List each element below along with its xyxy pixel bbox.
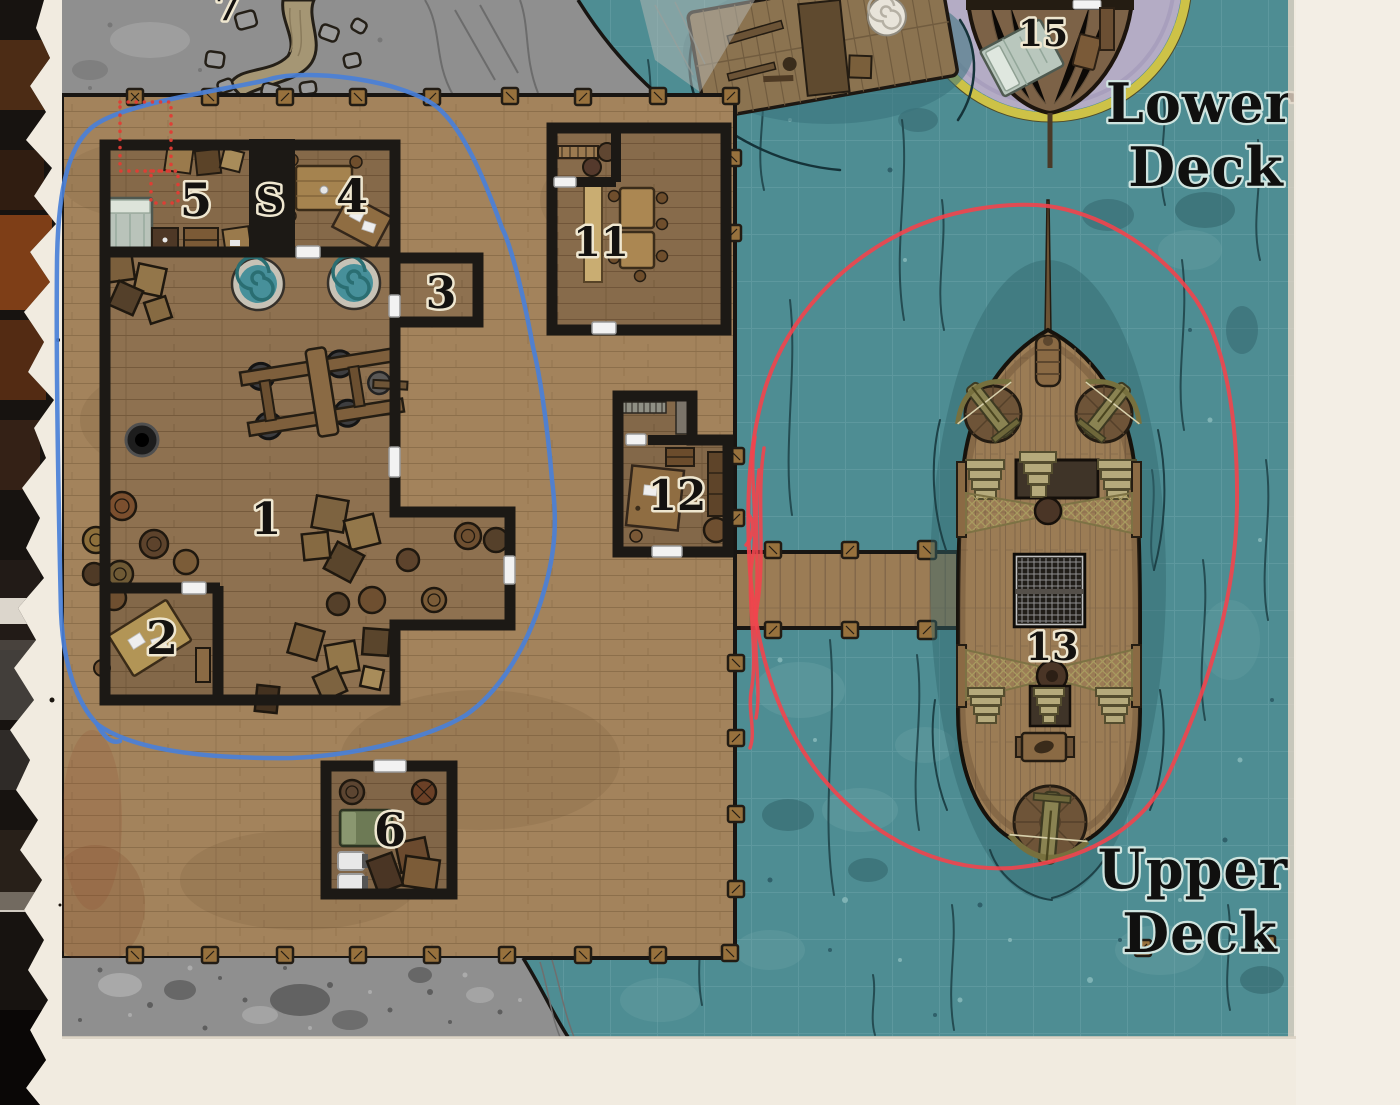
bench-icon bbox=[1016, 733, 1074, 761]
cargo-grate bbox=[1014, 554, 1085, 627]
room-label-15: 15 bbox=[1018, 13, 1068, 55]
door bbox=[626, 434, 646, 445]
map-image: 7 5 S 4 3 11 12 1 2 6 13 15 Lower Deck U… bbox=[0, 0, 1294, 1037]
chair-icon bbox=[338, 852, 368, 870]
door bbox=[374, 760, 406, 772]
upper-deck-title-line1: Upper bbox=[1098, 837, 1288, 901]
door bbox=[1073, 0, 1101, 9]
battle-map: 7 5 S 4 3 11 12 1 2 6 13 15 Lower Deck U… bbox=[0, 0, 1400, 1105]
room-label-6: 6 bbox=[374, 803, 406, 857]
room-label-7: 7 bbox=[215, 0, 241, 29]
shore-stone-bottom bbox=[62, 958, 574, 1037]
room-label-13: 13 bbox=[1026, 624, 1079, 669]
room-label-stairs: S bbox=[256, 177, 285, 224]
door bbox=[592, 322, 616, 334]
map-bottom-edge bbox=[62, 1036, 1296, 1039]
paper-right-margin bbox=[1296, 0, 1400, 1105]
room-label-1: 1 bbox=[251, 494, 282, 545]
map-edge bbox=[1288, 0, 1294, 1037]
battle-map-page: 7 5 S 4 3 11 12 1 2 6 13 15 Lower Deck U… bbox=[0, 0, 1400, 1105]
water-tub-icon bbox=[328, 256, 380, 309]
bed-icon bbox=[108, 198, 152, 252]
pier bbox=[735, 552, 958, 628]
water-tub-icon bbox=[232, 257, 284, 310]
lower-deck-title-line2: Deck bbox=[1128, 135, 1284, 199]
mast-stump bbox=[1035, 498, 1061, 524]
room-label-12: 12 bbox=[648, 471, 706, 520]
room-label-3: 3 bbox=[426, 268, 457, 319]
lower-deck-title-line1: Lower bbox=[1106, 71, 1294, 135]
well-hole bbox=[126, 424, 158, 456]
room-label-11: 11 bbox=[573, 219, 629, 266]
upper-deck-title-line2: Deck bbox=[1122, 901, 1278, 965]
room-label-2: 2 bbox=[146, 611, 178, 665]
shelf-icon bbox=[1100, 8, 1114, 50]
room-label-4: 4 bbox=[336, 169, 368, 223]
door bbox=[652, 546, 682, 557]
room-label-5: 5 bbox=[180, 173, 212, 227]
door bbox=[554, 177, 576, 187]
